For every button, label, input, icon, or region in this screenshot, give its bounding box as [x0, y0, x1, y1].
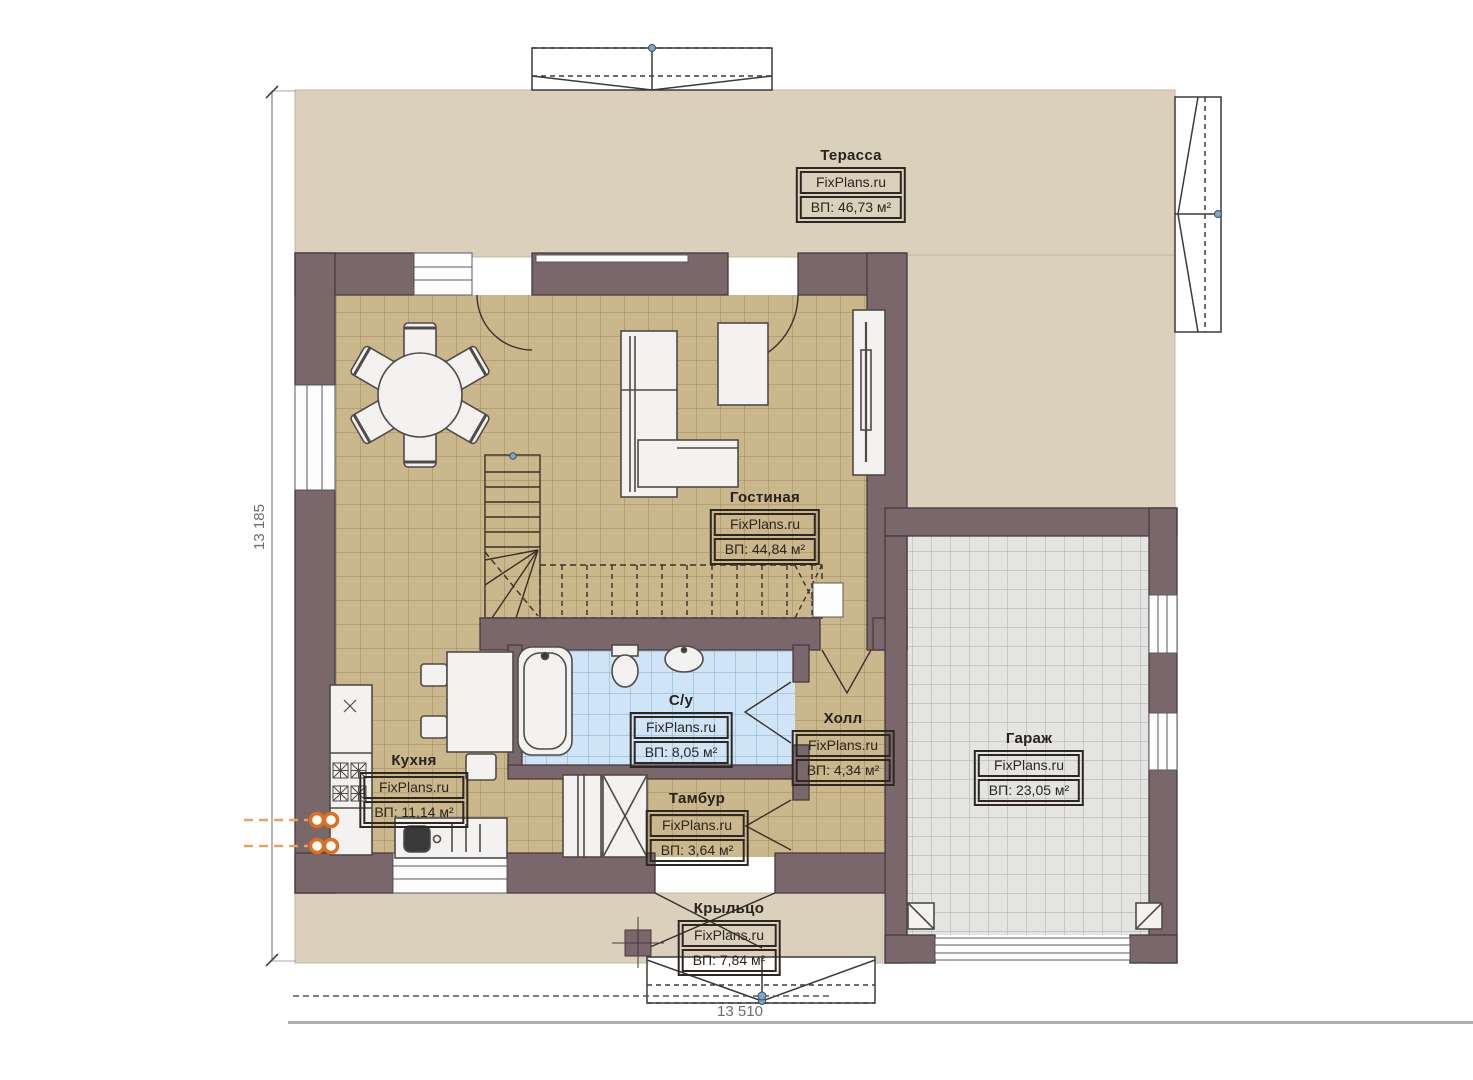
ground-line	[288, 1021, 1473, 1024]
sink-basin	[404, 826, 430, 852]
window-left-wall	[295, 385, 335, 490]
room-label-living: Гостиная FixPlans.ru ВП: 44,84 м²	[710, 489, 820, 565]
window-garage-2	[1149, 713, 1177, 770]
room-name: Холл	[792, 710, 895, 727]
dimension-left: 13 185	[251, 86, 296, 966]
floor-plan-canvas: 13 185 13 510 Терасса FixPlans.ru ВП: 46…	[0, 0, 1473, 1080]
kitchen-chair	[421, 716, 447, 738]
room-name: Терасса	[796, 147, 906, 164]
room-area: ВП: 8,05 м²	[634, 741, 729, 764]
brand-watermark: FixPlans.ru	[363, 776, 464, 799]
room-area: ВП: 44,84 м²	[714, 538, 816, 561]
bathtub-faucet	[542, 653, 549, 660]
room-name: Тамбур	[646, 790, 749, 807]
toilet	[612, 645, 638, 687]
room-name: Гараж	[974, 730, 1084, 747]
pergola-right	[1175, 97, 1222, 332]
room-label-hall: Холл FixPlans.ru ВП: 4,34 м²	[792, 710, 895, 786]
brand-watermark: FixPlans.ru	[800, 171, 902, 194]
room-area: ВП: 11,14 м²	[363, 801, 464, 824]
room-label-porch: Крыльцо FixPlans.ru ВП: 7,84 м²	[678, 900, 781, 976]
room-name: С/у	[630, 692, 733, 709]
coffee-table	[718, 323, 768, 405]
room-label-kitchen: Кухня FixPlans.ru ВП: 11,14 м²	[359, 752, 468, 828]
window-top-wall	[414, 253, 472, 295]
room-name: Крыльцо	[678, 900, 781, 917]
room-area: ВП: 46,73 м²	[800, 196, 902, 219]
brand-watermark: FixPlans.ru	[682, 924, 777, 947]
wardrobes	[563, 775, 647, 857]
room-label-terrace: Терасса FixPlans.ru ВП: 46,73 м²	[796, 147, 906, 223]
room-area: ВП: 3,64 м²	[650, 839, 745, 862]
window-bottom-wall	[393, 853, 507, 893]
dimension-width-label: 13 510	[717, 1003, 763, 1020]
room-area: ВП: 23,05 м²	[978, 779, 1080, 802]
dimension-bottom: 13 510	[288, 992, 1473, 1024]
kitchen-chair	[421, 664, 447, 686]
bathroom-sink	[665, 646, 703, 672]
brand-watermark: FixPlans.ru	[650, 814, 745, 837]
garage-gate	[935, 938, 1130, 960]
window-garage-1	[1149, 595, 1177, 653]
bathtub	[518, 647, 572, 755]
dimension-height-label: 13 185	[251, 504, 268, 550]
room-label-garage: Гараж FixPlans.ru ВП: 23,05 м²	[974, 730, 1084, 806]
tv-unit	[853, 310, 885, 475]
stair-landing-step	[813, 583, 843, 617]
room-area: ВП: 4,34 м²	[796, 759, 891, 782]
kitchen-chair	[466, 754, 496, 780]
room-area: ВП: 7,84 м²	[682, 949, 777, 972]
brand-watermark: FixPlans.ru	[714, 513, 816, 536]
brand-watermark: FixPlans.ru	[978, 754, 1080, 777]
porch-area	[295, 893, 883, 963]
brand-watermark: FixPlans.ru	[634, 716, 729, 739]
brand-watermark: FixPlans.ru	[796, 734, 891, 757]
window-sill-strip	[536, 255, 688, 262]
sink-faucet	[434, 836, 441, 843]
room-name: Гостиная	[710, 489, 820, 506]
kitchen-table	[447, 652, 513, 752]
pergola-top	[532, 45, 772, 91]
dining-table	[378, 353, 462, 437]
room-name: Кухня	[359, 752, 468, 769]
room-label-bathroom: С/у FixPlans.ru ВП: 8,05 м²	[630, 692, 733, 768]
room-label-tambur: Тамбур FixPlans.ru ВП: 3,64 м²	[646, 790, 749, 866]
